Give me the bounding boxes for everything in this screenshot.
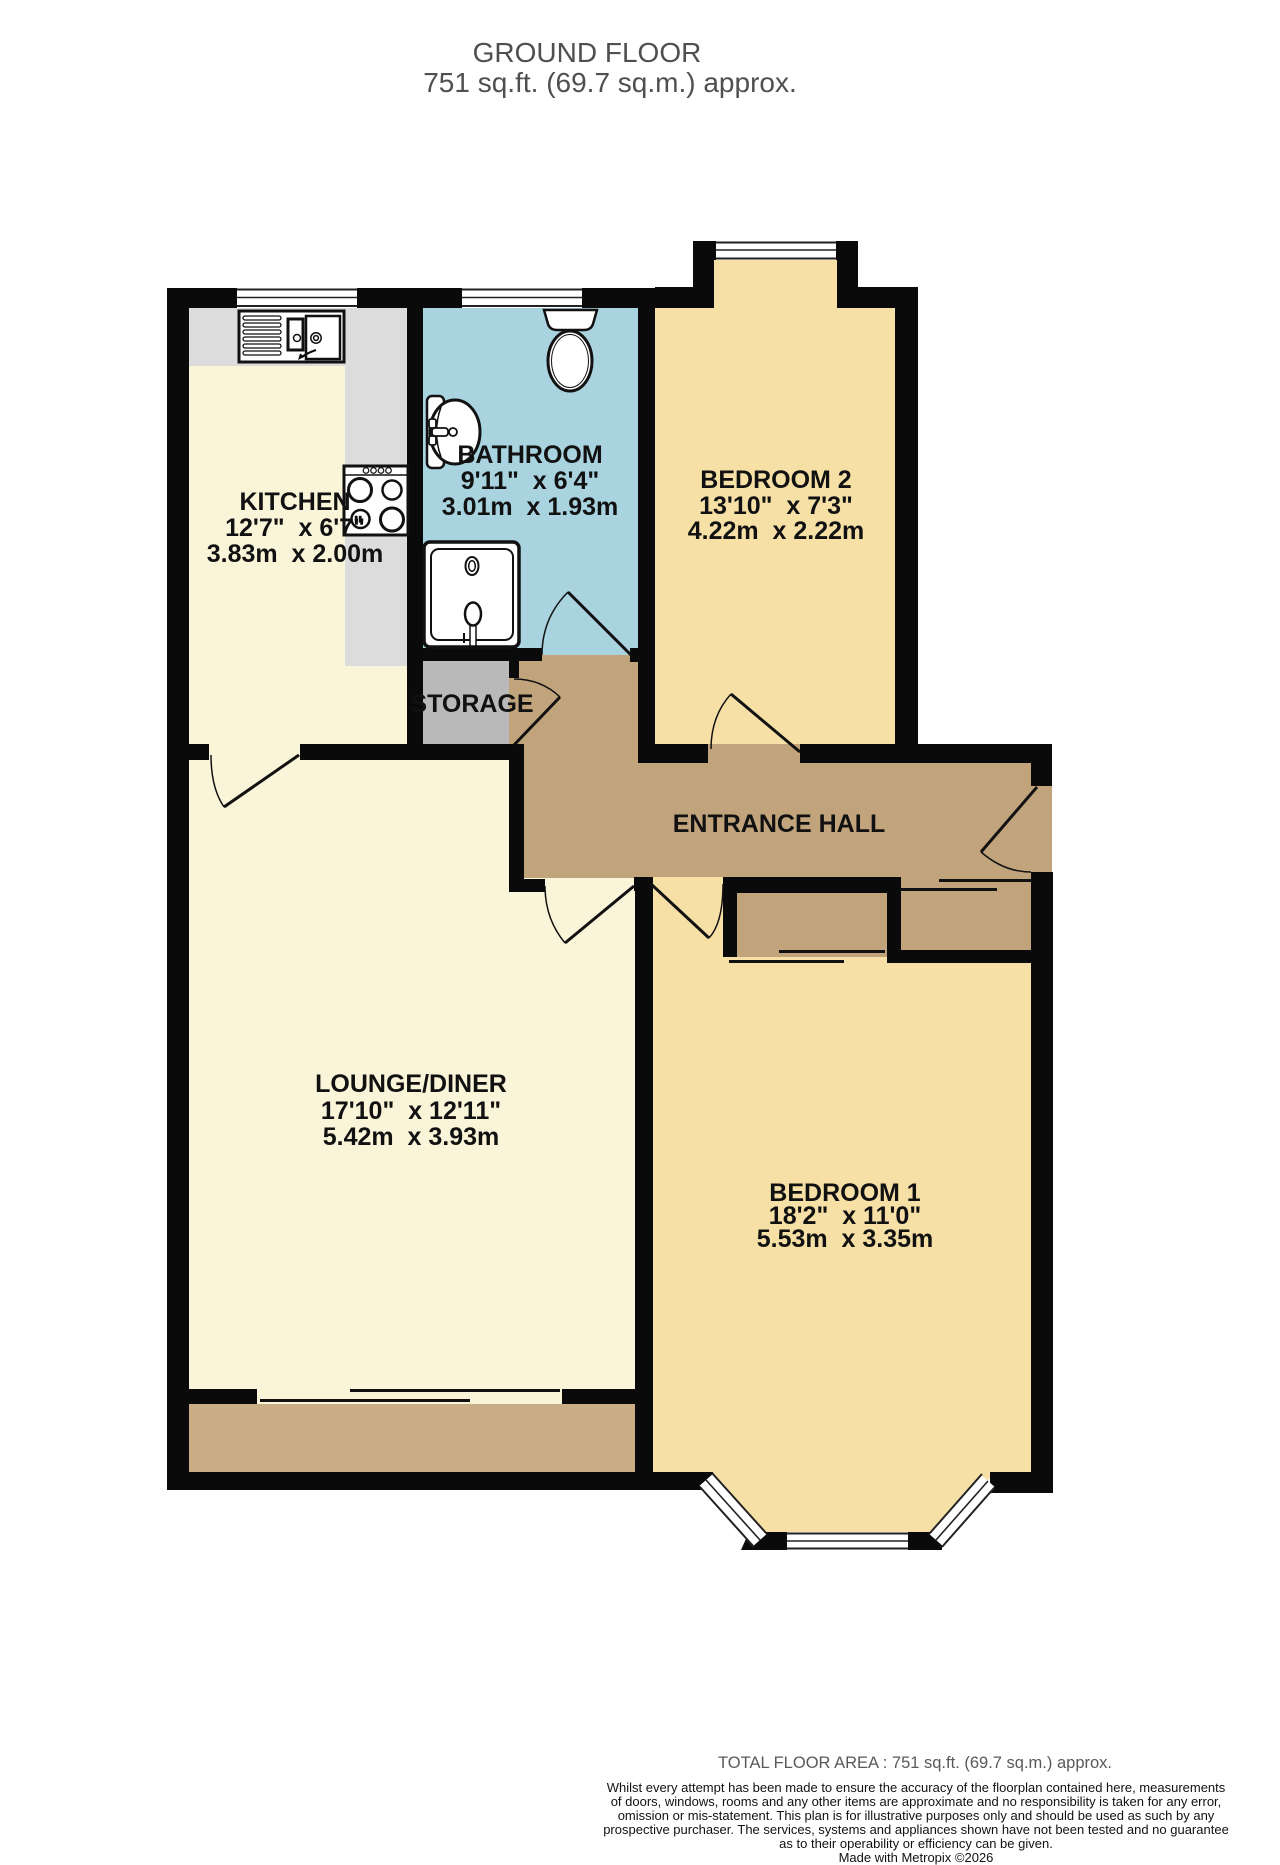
svg-text:STORAGE: STORAGE bbox=[410, 690, 533, 718]
svg-text:9'11" x 6'4": 9'11" x 6'4" bbox=[461, 467, 599, 495]
svg-text:5.42m x 3.93m: 5.42m x 3.93m bbox=[323, 1123, 500, 1151]
svg-text:of doors, windows, rooms and a: of doors, windows, rooms and any other i… bbox=[611, 1794, 1222, 1809]
svg-text:751 sq.ft. (69.7 sq.m.) approx: 751 sq.ft. (69.7 sq.m.) approx. bbox=[423, 67, 797, 98]
svg-text:TOTAL FLOOR AREA : 751 sq.ft.: TOTAL FLOOR AREA : 751 sq.ft. (69.7 sq.m… bbox=[718, 1754, 1112, 1772]
svg-text:Made with Metropix ©2026: Made with Metropix ©2026 bbox=[839, 1850, 994, 1865]
svg-text:12'7" x 6'7": 12'7" x 6'7" bbox=[225, 514, 365, 542]
svg-text:17'10" x 12'11": 17'10" x 12'11" bbox=[321, 1097, 501, 1125]
svg-text:omission or mis-statement. Thi: omission or mis-statement. This plan is … bbox=[618, 1808, 1215, 1823]
svg-text:13'10" x 7'3": 13'10" x 7'3" bbox=[699, 492, 853, 520]
svg-text:3.83m x 2.00m: 3.83m x 2.00m bbox=[207, 540, 384, 568]
svg-text:4.22m x 2.22m: 4.22m x 2.22m bbox=[688, 517, 865, 545]
svg-text:LOUNGE/DINER: LOUNGE/DINER bbox=[315, 1070, 507, 1098]
svg-text:Whilst every attempt has been: Whilst every attempt has been made to en… bbox=[607, 1780, 1226, 1795]
svg-text:prospective purchaser. The ser: prospective purchaser. The services, sys… bbox=[603, 1822, 1229, 1837]
svg-text:KITCHEN: KITCHEN bbox=[239, 488, 350, 516]
svg-text:5.53m x 3.35m: 5.53m x 3.35m bbox=[757, 1225, 934, 1253]
svg-text:3.01m x 1.93m: 3.01m x 1.93m bbox=[442, 493, 619, 521]
svg-text:BEDROOM 2: BEDROOM 2 bbox=[700, 466, 851, 494]
svg-text:GROUND FLOOR: GROUND FLOOR bbox=[473, 37, 702, 68]
svg-text:ENTRANCE HALL: ENTRANCE HALL bbox=[673, 810, 886, 838]
svg-text:as to their operability or eff: as to their operability or efficiency ca… bbox=[779, 1836, 1053, 1851]
svg-text:BATHROOM: BATHROOM bbox=[457, 441, 602, 469]
